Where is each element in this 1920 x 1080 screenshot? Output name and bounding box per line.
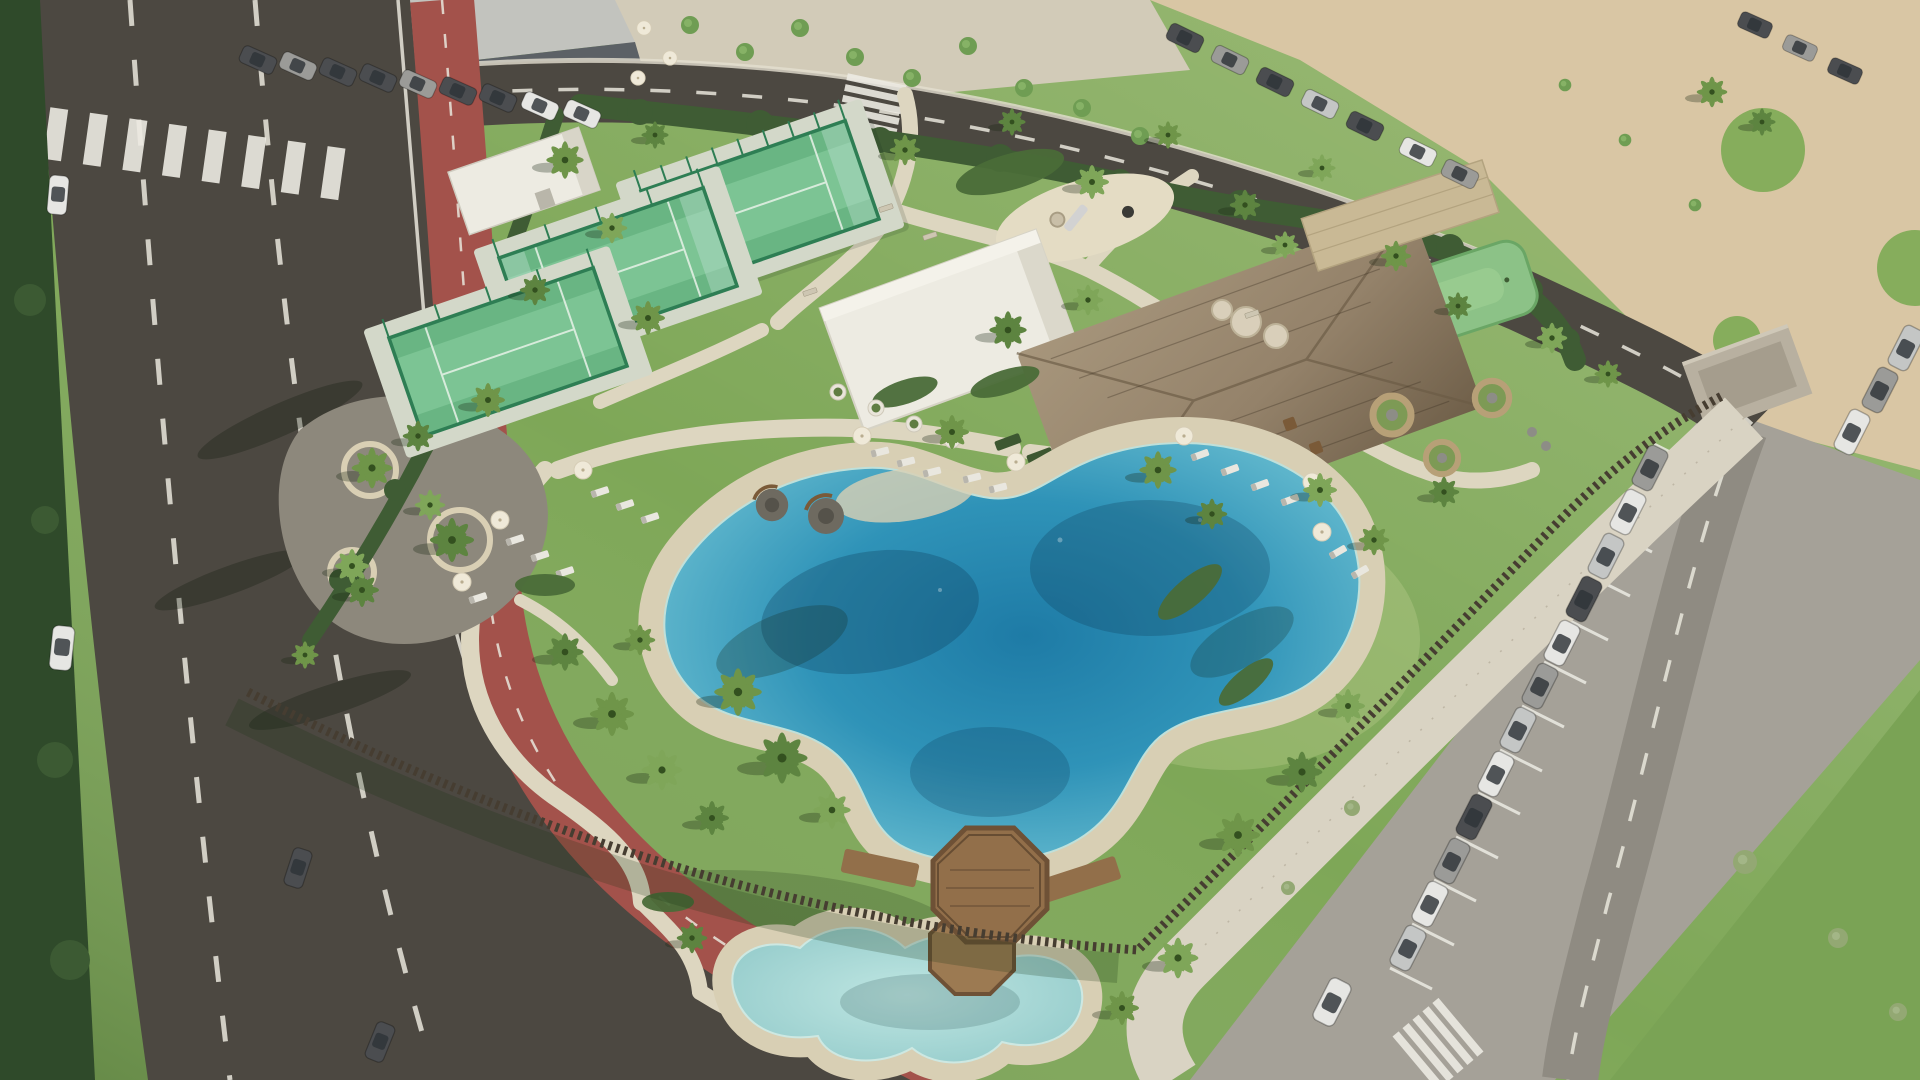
sapling-tree [1281,881,1295,895]
wicker-cabana [1475,381,1509,415]
roadside-shrub [31,506,59,534]
sapling-tree [1619,134,1632,147]
sapling-tree [1344,800,1360,816]
pool-umbrella [853,427,871,445]
olive-tree-planter [868,400,884,416]
pool-umbrella [1313,523,1331,541]
boulder [1212,300,1232,320]
wicker-cabana [1426,442,1458,474]
olive-tree-planter [906,416,922,432]
pool-umbrella [574,461,592,479]
white-car-left-road [47,175,70,216]
olive-tree [1889,1003,1907,1021]
white-van-bottom-left [49,625,76,671]
pool-umbrella [491,511,509,529]
garden-bed [515,574,575,596]
olive-tree [1733,850,1757,874]
pool-umbrella [1175,427,1193,445]
sapling-tree [1559,79,1572,92]
pool-umbrella [453,573,471,591]
outdoor-pouf [1541,441,1551,451]
olive-tree [1828,928,1848,948]
wicker-cabana [1373,396,1411,434]
roadside-shrub [37,742,73,778]
aerial-photo [0,0,1920,1080]
pool-deep-patch [1030,500,1270,636]
roadside-shrub [14,284,46,316]
roadside-shrub [50,940,90,980]
deck-upper-octagon [933,828,1047,942]
pool-deep-patch [910,727,1070,817]
outdoor-pouf [1527,427,1537,437]
olive-tree-planter [830,384,846,400]
boulder [1264,324,1288,348]
sapling-tree [1689,199,1702,212]
pool-umbrella [1007,453,1025,471]
aerial-scene [0,0,1920,1080]
